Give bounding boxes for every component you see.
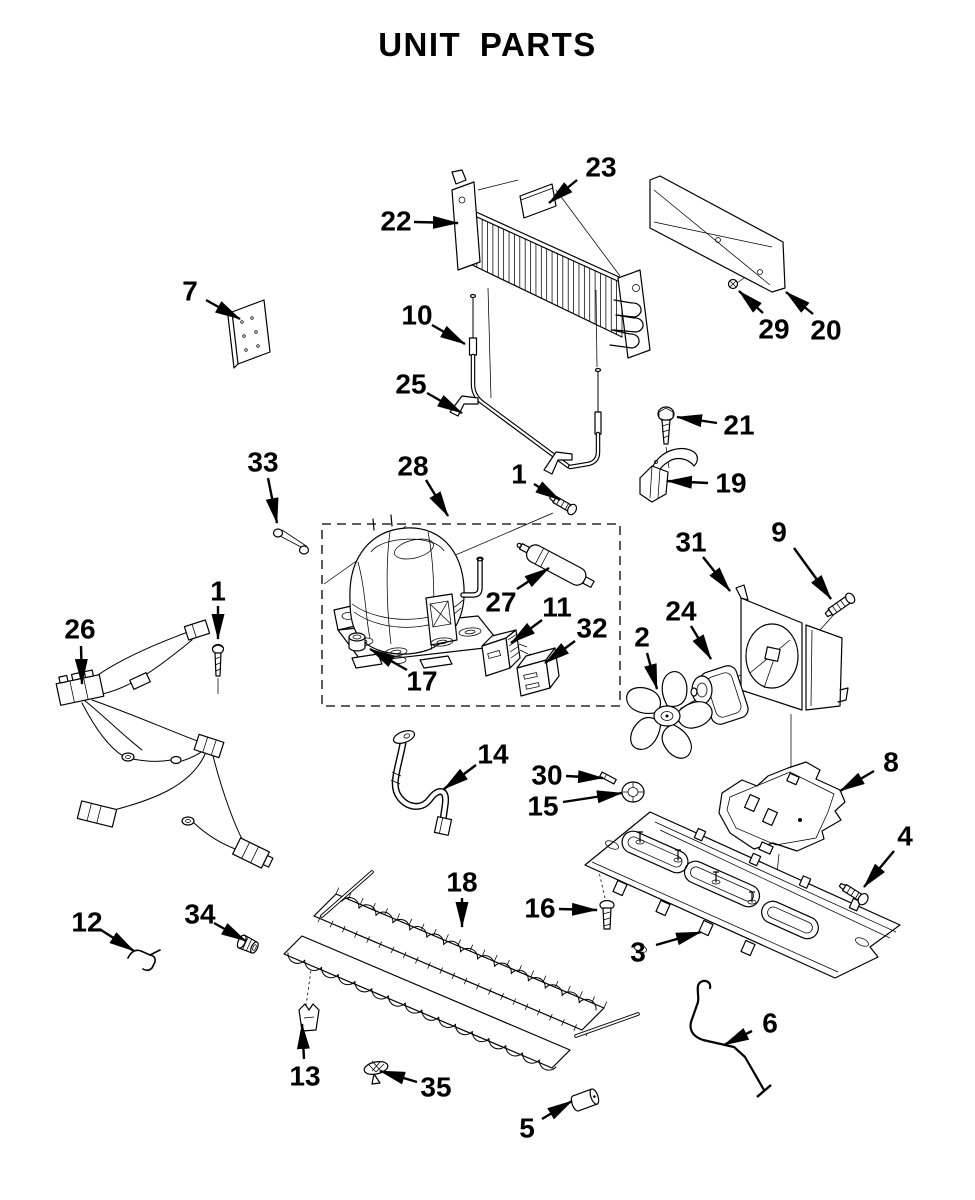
callout-14: 14 (444, 739, 509, 790)
callout-number: 7 (182, 276, 198, 307)
parts-diagram-canvas: 2322292071025211933281271132224319172618… (0, 0, 975, 1200)
callout-6: 6 (724, 1008, 778, 1046)
callout-number: 2 (634, 622, 650, 653)
part-12-wire-clip (128, 950, 160, 970)
callout-27: 27 (485, 568, 549, 618)
part-32-relay-cover (517, 648, 559, 696)
callout-number: 23 (585, 152, 616, 183)
callout-34: 34 (184, 899, 246, 942)
callout-28: 28 (397, 451, 448, 517)
callout-number: 34 (184, 899, 216, 930)
part-21-screw (658, 407, 674, 444)
part-8-tray (719, 762, 845, 854)
part-26-wire-harness (55, 620, 275, 871)
callout-number: 18 (446, 867, 477, 898)
part-29-screw (729, 280, 738, 289)
callout-number: 30 (531, 760, 562, 791)
part-33-link (274, 529, 309, 554)
callout-11: 11 (511, 592, 572, 644)
callout-number: 11 (542, 592, 572, 623)
callout-number: 3 (630, 937, 646, 968)
callout-2: 2 (634, 622, 657, 690)
part-7-plate (228, 300, 270, 368)
callout-number: 21 (723, 410, 754, 441)
part-6-wire-tube (691, 981, 771, 1097)
callout-number: 1 (210, 576, 226, 607)
callout-number: 33 (247, 447, 278, 478)
callout-19: 19 (667, 468, 747, 499)
callout-number: 22 (380, 206, 411, 237)
callout-3: 3 (630, 932, 701, 968)
callout-4: 4 (864, 821, 913, 888)
unit-parts-page: UNIT PARTS (0, 0, 975, 1200)
callout-23: 23 (549, 152, 617, 204)
callout-16: 16 (524, 893, 597, 924)
callout-30: 30 (531, 760, 603, 791)
callout-18: 18 (446, 867, 477, 928)
callout-35: 35 (380, 1071, 452, 1103)
part-25-support-frame (450, 356, 601, 474)
callout-number: 26 (64, 614, 95, 645)
part-19-clamp (640, 449, 697, 502)
callout-number: 17 (406, 666, 437, 697)
callout-33: 33 (247, 447, 278, 524)
callout-number: 27 (485, 587, 516, 618)
callout-number: 24 (665, 596, 697, 627)
callout-10: 10 (401, 300, 465, 345)
callout-number: 28 (397, 451, 428, 482)
callout-9: 9 (771, 517, 831, 600)
callout-31: 31 (675, 527, 730, 592)
part-14-hose (391, 728, 452, 835)
callout-number: 25 (395, 369, 426, 400)
callout-number: 8 (883, 747, 899, 778)
part-10-tube (470, 295, 477, 356)
callout-20: 20 (786, 292, 842, 346)
callout-1: 1 (210, 576, 226, 640)
part-15-grommet (622, 782, 644, 802)
callout-24: 24 (665, 596, 711, 660)
part-20-cover (650, 176, 785, 292)
callout-number: 10 (401, 300, 432, 331)
callout-number: 31 (675, 527, 706, 558)
callout-number: 1 (511, 459, 527, 490)
callout-number: 35 (420, 1072, 451, 1103)
callout-number: 20 (810, 315, 841, 346)
callout-number: 12 (71, 907, 102, 938)
callout-number: 16 (524, 893, 555, 924)
callout-21: 21 (677, 410, 755, 441)
callout-number: 9 (771, 517, 787, 548)
callout-number: 19 (715, 468, 746, 499)
callout-25: 25 (395, 369, 462, 414)
part-17-grommet (349, 633, 365, 651)
callout-13: 13 (289, 1024, 320, 1092)
callout-number: 29 (758, 314, 789, 345)
part-16-screw (600, 901, 614, 930)
callout-number: 4 (897, 821, 913, 852)
callout-number: 15 (527, 791, 558, 822)
callout-number: 6 (762, 1008, 778, 1039)
callout-12: 12 (71, 907, 134, 952)
callout-15: 15 (527, 791, 622, 822)
part-5-spacer (570, 1088, 601, 1112)
part-1-screw-left (213, 645, 224, 677)
callout-29: 29 (739, 291, 790, 345)
callout-number: 14 (477, 739, 509, 770)
callout-22: 22 (380, 206, 458, 237)
callout-5: 5 (519, 1101, 572, 1144)
callout-number: 13 (289, 1061, 320, 1092)
callout-8: 8 (840, 747, 899, 792)
callout-number: 5 (519, 1113, 535, 1144)
part-31-fan-shroud (736, 585, 848, 710)
callout-number: 32 (576, 613, 607, 644)
